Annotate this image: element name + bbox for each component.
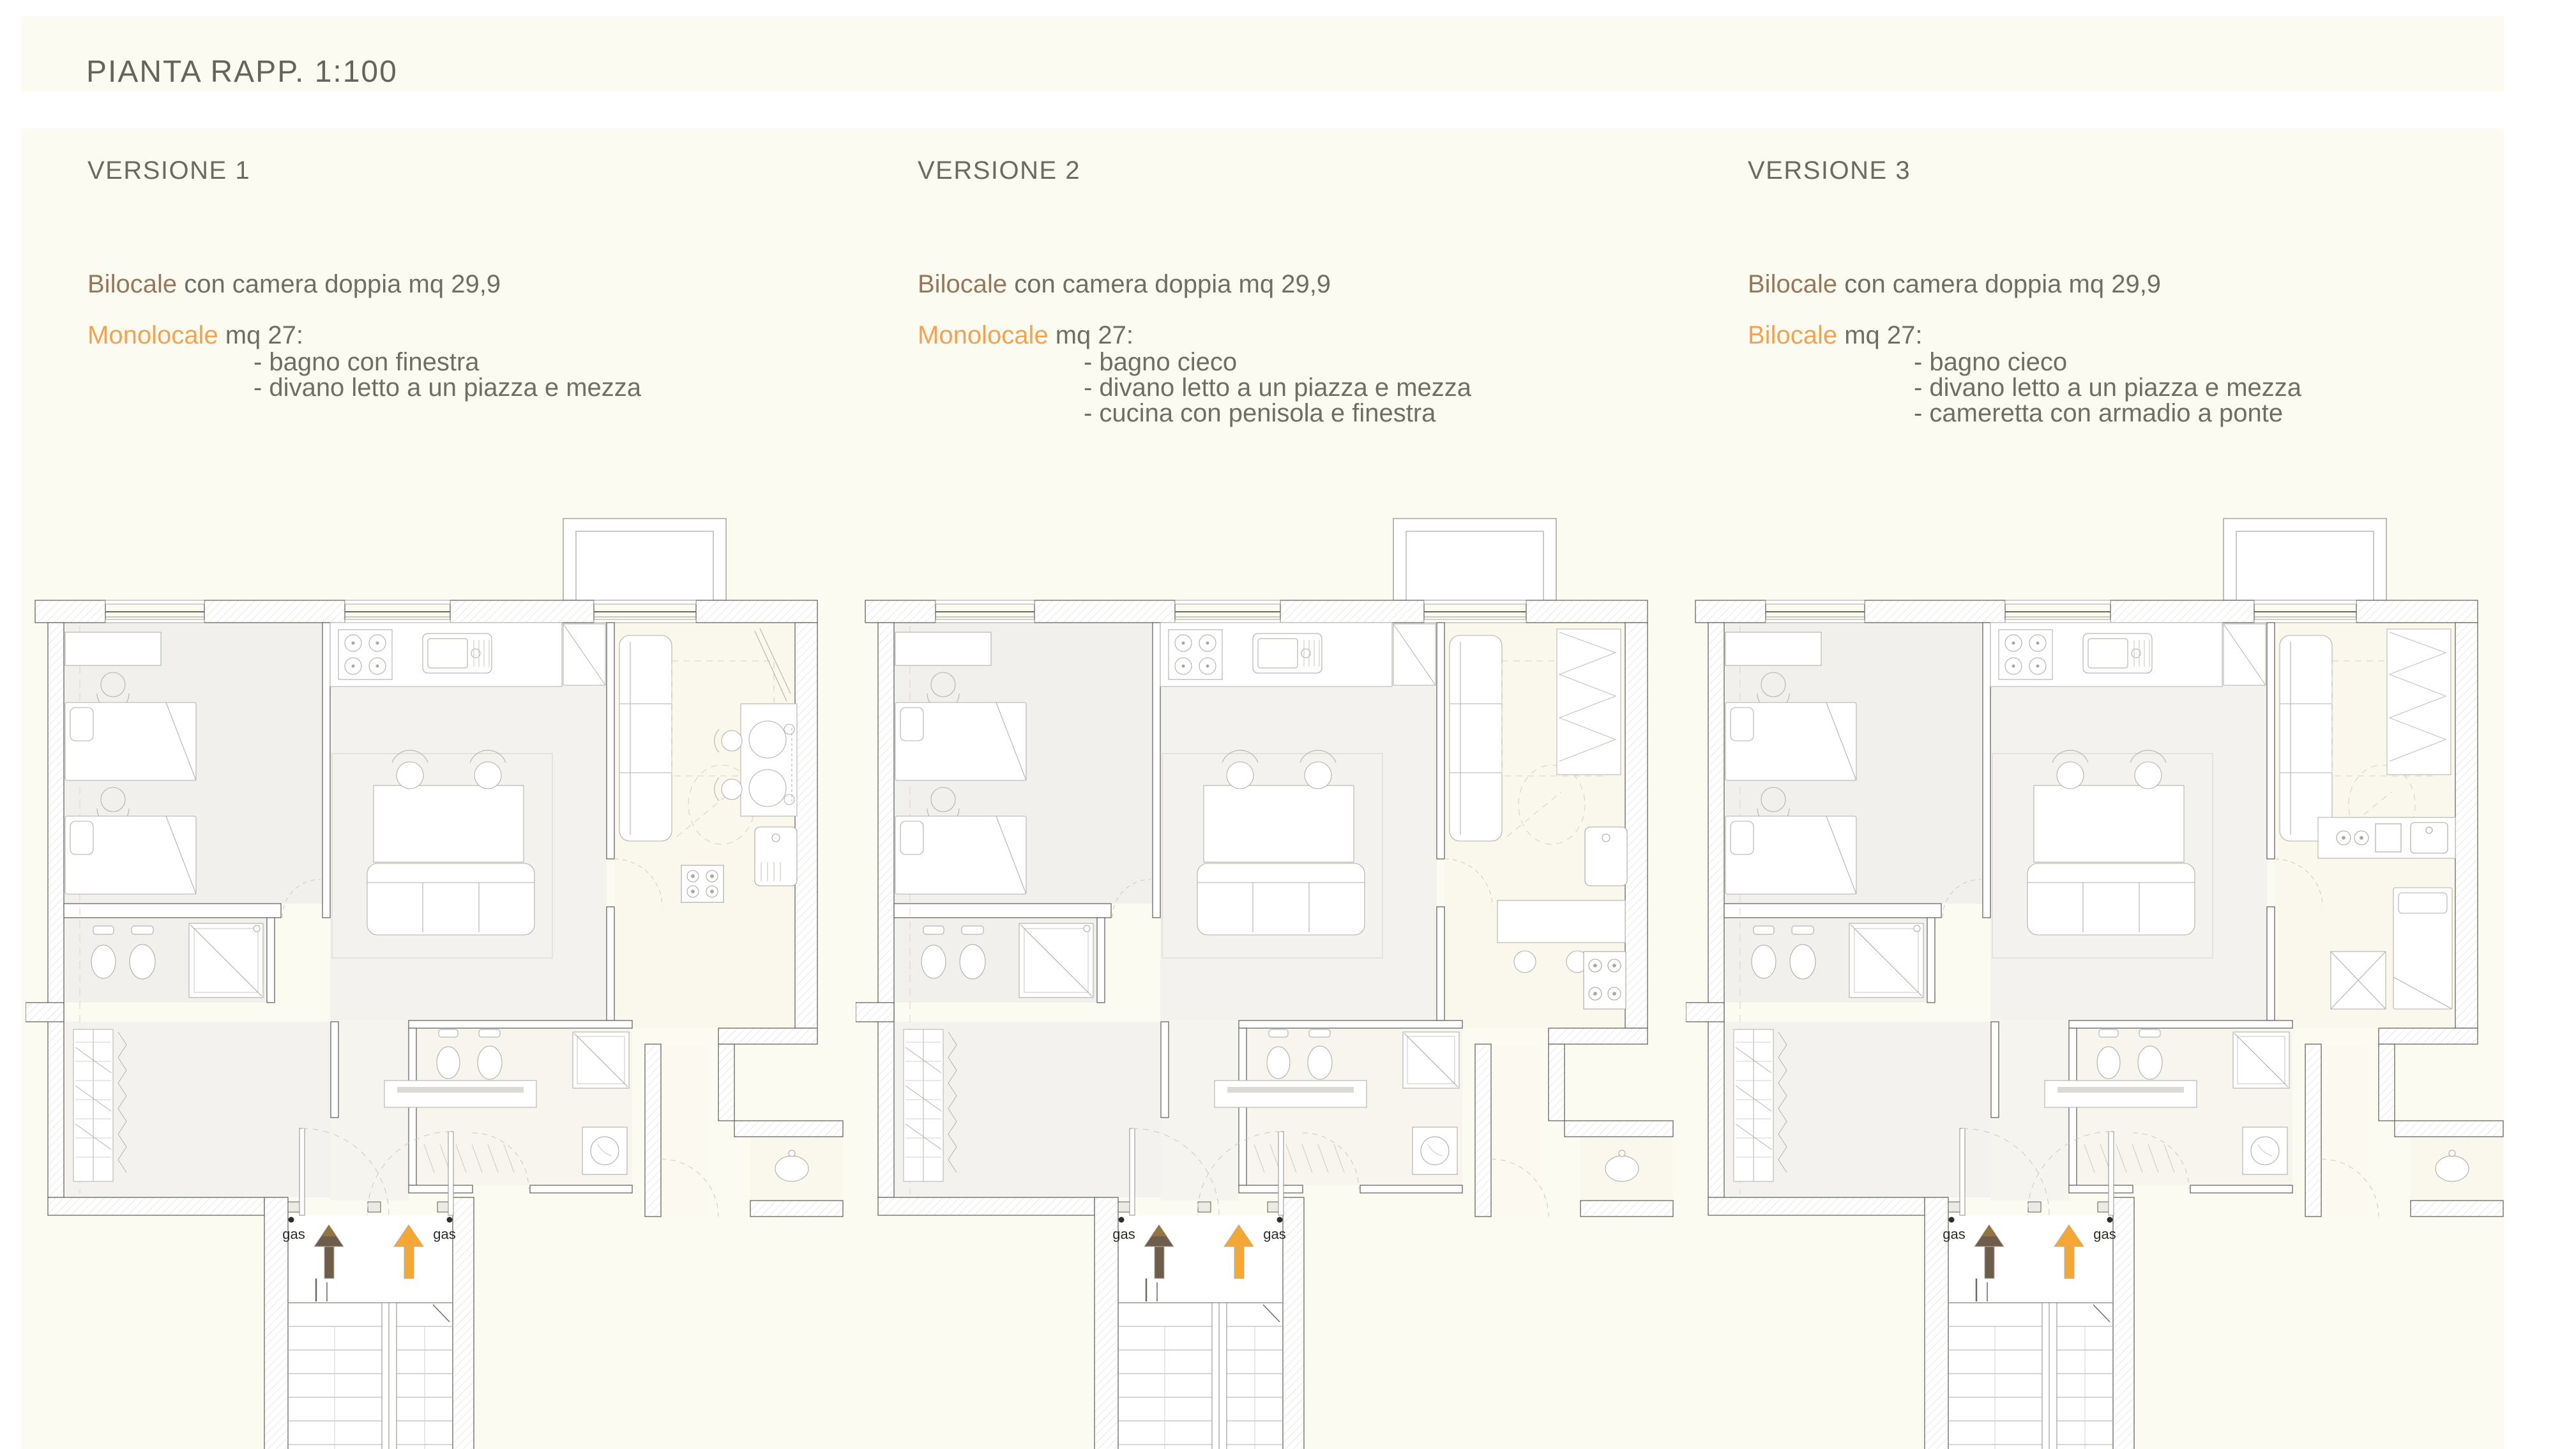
bilocale-desc: con camera doppia mq 29,9 <box>1837 270 2161 298</box>
svg-text:gas: gas <box>1263 1226 1285 1242</box>
version-3-bilocale-line: Bilocale con camera doppia mq 29,9 <box>1748 270 2161 299</box>
version-2-unit-line: Monolocale mq 27: <box>918 321 1133 350</box>
bilocale-desc: con camera doppia mq 29,9 <box>177 270 501 298</box>
svg-text:gas: gas <box>282 1226 305 1242</box>
floor-plan-version-2: gas gas <box>856 504 1686 1449</box>
floor-plan-svg: gas gas <box>856 504 1686 1449</box>
version-3-bullet-1: - bagno cieco <box>1914 348 2067 377</box>
unit-label: Bilocale <box>1748 321 1837 349</box>
floor-plan-svg: gas gas <box>26 504 856 1449</box>
version-2-bullet-3: - cucina con penisola e finestra <box>1084 399 1436 428</box>
version-2-column: VERSIONE 2 Bilocale con camera doppia mq… <box>918 128 1709 486</box>
title-strip: PIANTA RAPP. 1:100 <box>21 16 2504 91</box>
content-area: VERSIONE 1 Bilocale con camera doppia mq… <box>21 128 2504 1449</box>
version-1-bullet-1: - bagno con finestra <box>254 348 480 377</box>
svg-text:gas: gas <box>433 1226 455 1242</box>
version-2-bullet-1: - bagno cieco <box>1084 348 1237 377</box>
balcony <box>1393 519 1556 600</box>
windows <box>936 600 1526 623</box>
bilocale-label: Bilocale <box>1748 270 1837 298</box>
version-1-unit-line: Monolocale mq 27: <box>87 321 303 350</box>
balcony <box>563 519 726 600</box>
svg-text:gas: gas <box>1112 1226 1135 1242</box>
living-kitchen <box>330 623 605 687</box>
zigzag-wardrobe <box>2387 629 2451 775</box>
screenshot-root: { "page": { "title": "PIANTA RAPP. 1:100… <box>0 0 2576 1449</box>
version-3-unit-line: Bilocale mq 27: <box>1748 321 1922 350</box>
windows <box>105 600 696 623</box>
floor-plan-version-3: gas gas <box>1686 504 2504 1449</box>
balcony <box>2224 519 2386 600</box>
unit-label: Monolocale <box>87 321 218 349</box>
floor-plan-version-1: gas gas <box>26 504 856 1449</box>
windows <box>1766 600 2356 623</box>
bilocale-label: Bilocale <box>918 270 1007 298</box>
version-3-bullet-3: - cameretta con armadio a ponte <box>1914 399 2283 428</box>
living-kitchen <box>1160 623 1436 687</box>
svg-text:gas: gas <box>1943 1226 1965 1242</box>
version-1-title: VERSIONE 1 <box>87 156 250 185</box>
unit-desc: mq 27: <box>1837 321 1922 349</box>
version-3-column: VERSIONE 3 Bilocale con camera doppia mq… <box>1748 128 2504 486</box>
unit-desc: mq 27: <box>1049 321 1133 349</box>
svg-text:gas: gas <box>2093 1226 2116 1242</box>
version-3-title: VERSIONE 3 <box>1748 156 1911 185</box>
version-1-column: VERSIONE 1 Bilocale con camera doppia mq… <box>87 128 879 486</box>
unit-desc: mq 27: <box>218 321 303 349</box>
bilocale-label: Bilocale <box>87 270 177 298</box>
version-1-bilocale-line: Bilocale con camera doppia mq 29,9 <box>87 270 501 299</box>
bilocale-desc: con camera doppia mq 29,9 <box>1007 270 1331 298</box>
version-1-bullet-2: - divano letto a un piazza e mezza <box>254 374 641 402</box>
zigzag-wardrobe <box>1557 629 1621 775</box>
unit-label: Monolocale <box>918 321 1049 349</box>
page-title: PIANTA RAPP. 1:100 <box>86 54 398 89</box>
version-2-bullet-2: - divano letto a un piazza e mezza <box>1084 374 1471 402</box>
version-2-title: VERSIONE 2 <box>918 156 1080 185</box>
version-3-bullet-2: - divano letto a un piazza e mezza <box>1914 374 2301 402</box>
version-2-bilocale-line: Bilocale con camera doppia mq 29,9 <box>918 270 1331 299</box>
living-kitchen <box>1990 623 2266 687</box>
floor-plan-svg: gas gas <box>1686 504 2504 1449</box>
